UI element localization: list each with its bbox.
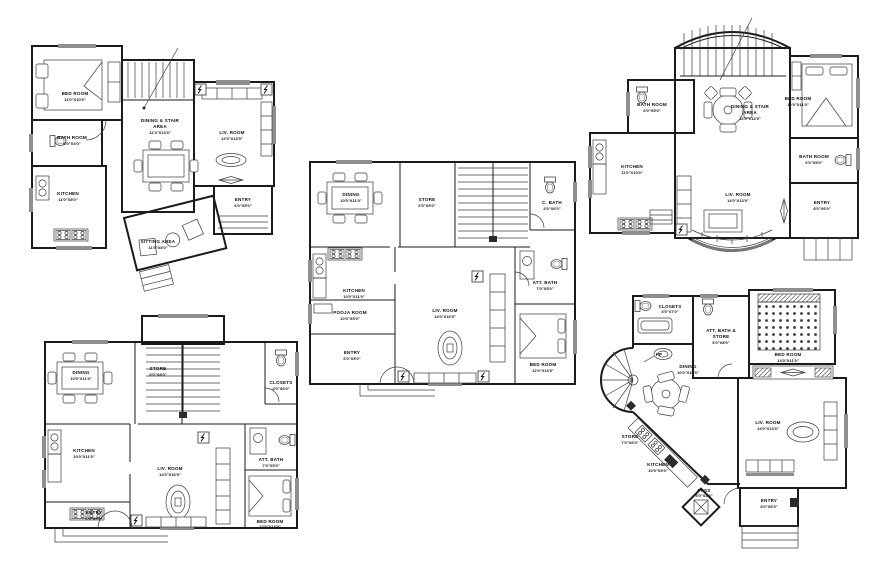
room-label: KITCHEN (621, 164, 643, 169)
room-label: STORE (419, 197, 436, 202)
door-arc (718, 364, 732, 378)
pass-box (694, 500, 708, 514)
room-label: LIV. ROOM (157, 466, 182, 471)
room-label: DINING (679, 364, 697, 369)
room-dims: 10'0"X5'0" (340, 316, 360, 321)
room-dims: 6'0"X5'0" (85, 516, 102, 521)
door-arc (530, 214, 544, 228)
wing-ornament (781, 199, 788, 223)
room-dims: 4'0"X4'0" (695, 493, 712, 498)
electric-symbol (261, 84, 272, 95)
room-dims: 6'0"X5'0" (234, 203, 251, 208)
room-dims: 14'0"X13'0" (757, 426, 779, 431)
room-label: KITCHEN (73, 448, 95, 453)
stove (328, 248, 362, 260)
room-label: BATH ROOM (799, 154, 829, 159)
center-table (166, 485, 190, 519)
stove (54, 229, 88, 241)
room-dims: 14'0"X16'0" (434, 314, 456, 319)
room-label: KITCHEN (57, 191, 79, 196)
toilet-icon (635, 301, 651, 312)
room-dims: 7'0"X5'0" (536, 286, 553, 291)
room-label: POOJA ROOM (333, 310, 366, 315)
room-dims: 8'0"X6'0" (760, 504, 777, 509)
center-table (216, 154, 246, 167)
room-label: BED ROOM (530, 362, 557, 367)
room-label: ATT. BATH (259, 457, 284, 462)
dining-table (134, 141, 198, 191)
double-bed (249, 476, 291, 516)
electric-symbol (478, 371, 489, 382)
toilet-icon (703, 299, 714, 315)
kitchen-sink (313, 254, 326, 278)
room-dims: 10'0"X10'0" (677, 370, 699, 375)
room-label: KITCHEN (343, 288, 365, 293)
room-label: BED ROOM (62, 91, 89, 96)
plan-1: BED ROOM 11'0"X10'0" BATH ROOM 6'0"X4'0"… (29, 44, 276, 292)
room-dims: 14'0"X16'0" (159, 472, 181, 477)
entry-steps (218, 216, 268, 228)
room-dims: 10'0"X11'0" (340, 198, 362, 203)
floor-plan-sheet: BED ROOM 11'0"X10'0" BATH ROOM 6'0"X4'0"… (0, 0, 870, 566)
room-dims: 12'0"X11'0" (787, 102, 809, 107)
toilet-icon (551, 259, 567, 270)
room-dims: 10'0"X11'0" (73, 454, 95, 459)
round-dining-table (643, 371, 690, 416)
room-label: KITCHEN (647, 462, 669, 467)
vanity (520, 251, 534, 279)
room-dims: 12'4"X13'0" (149, 130, 171, 135)
sofa-set (414, 373, 476, 383)
sofa-set (202, 88, 272, 156)
room-label: AREA (743, 110, 757, 115)
room-dims: 10'0"X11'0" (70, 376, 92, 381)
curved-sofa (692, 230, 772, 251)
room-dims: 4'0"X6'0" (272, 386, 289, 391)
room-label: BATH ROOM (637, 102, 667, 107)
room-label: BED ROOM (785, 96, 812, 101)
room-dims: 10'0"X11'0" (343, 294, 365, 299)
room-label: DINING (72, 370, 90, 375)
entry-steps (742, 526, 798, 548)
electric-symbol (472, 271, 483, 282)
room-dims: 10'0"X9'0" (648, 468, 668, 473)
plan-5: CLOSETS 4'0"X7'0" ATT. BATH & STORE 6'0"… (601, 288, 848, 548)
room-dims: 11'0"X8'0" (148, 245, 167, 250)
kitchen-counter (628, 418, 697, 487)
room-dims: 12'0"X13'0" (532, 368, 554, 373)
sofa-set (146, 517, 206, 527)
room-label: BED ROOM (775, 352, 802, 357)
cad-drawing: BED ROOM 11'0"X10'0" BATH ROOM 6'0"X4'0"… (0, 0, 870, 566)
spiral-staircase (601, 349, 638, 411)
double-bed (802, 64, 852, 126)
electric-symbol (398, 371, 409, 382)
double-bed (520, 314, 566, 358)
room-label: ENTRY (814, 200, 830, 205)
staircase (122, 48, 194, 110)
room-label: STORE (150, 366, 167, 371)
vanity (250, 428, 266, 454)
center-table (438, 331, 462, 365)
door-arc (724, 488, 740, 504)
plan-3: BATH ROOM 6'0"X5'0" DINING & STAIR AREA … (588, 18, 860, 260)
room-dims: 11'0"X10'0" (64, 97, 86, 102)
room-label: DINING & STAIR (141, 118, 180, 123)
room-dims: 14'0"X13'0" (727, 198, 749, 203)
kitchen-sink (593, 140, 606, 164)
staircase (146, 344, 220, 418)
room-label: CLOSETS (269, 380, 292, 385)
room-label: LIV. ROOM (725, 192, 750, 197)
room-dims: 6'0"X5'0" (805, 160, 822, 165)
room-label: STORE (622, 434, 639, 439)
room-label: DINING & STAIR (731, 104, 770, 109)
steps (650, 210, 672, 224)
stove (618, 218, 652, 230)
electric-symbol (676, 224, 687, 235)
toilet-icon (835, 155, 851, 166)
double-bed (36, 60, 102, 110)
double-bed (758, 294, 820, 350)
room-label: ATT. BATH (533, 280, 558, 285)
electric-symbol (195, 84, 206, 95)
plan-4: DINING 10'0"X11'0" STORE 6'0"X8'0" CLOSE… (42, 314, 299, 542)
room-label: DINING (342, 192, 360, 197)
room-label: SITTING AREA (141, 239, 176, 244)
electric-symbol (198, 432, 209, 443)
room-dims: 11'0"X10'0" (621, 170, 643, 175)
pooja-shelf (314, 304, 332, 313)
wardrobe (490, 274, 505, 362)
room-dims: 12'0"X13'0" (221, 136, 243, 141)
room-dims: 14'0"X11'0" (777, 358, 799, 363)
staircase (458, 162, 528, 242)
dresser-row (753, 366, 833, 379)
room-dims: 12'0"X13'0" (259, 524, 281, 529)
wing-ornament (219, 177, 243, 184)
room-dims: 6'0"X5'0" (343, 356, 360, 361)
wardrobe (216, 448, 230, 524)
room-dims: 4'0"X7'0" (661, 309, 678, 314)
room-label: BATH ROOM (57, 135, 87, 140)
room-label: ENTRY (235, 197, 251, 202)
room-dims: 7'0"X5'0" (262, 463, 279, 468)
electric-symbol (131, 515, 142, 526)
toilet-icon (279, 435, 295, 446)
room-dims: 6'0"X5'0" (643, 108, 660, 113)
kitchen-sink (48, 430, 61, 454)
center-table (787, 422, 819, 442)
kitchen-sink (36, 176, 49, 200)
room-label: LIV. ROOM (755, 420, 780, 425)
tv-table (704, 210, 742, 232)
room-dims: 4'0"X6'0" (543, 206, 560, 211)
room-dims: 8'0"X6'0" (813, 206, 830, 211)
room-dims: 6'0"X8'0" (712, 340, 729, 345)
room-label: ENTRY (344, 350, 360, 355)
room-label: AREA (153, 124, 167, 129)
room-label: LIV. ROOM (432, 308, 457, 313)
bathtub (638, 318, 672, 333)
room-dims: 6'0"X8'0" (149, 372, 166, 377)
room-label: ENTRY (761, 498, 777, 503)
room-dims: 6'0"X9'0" (418, 203, 435, 208)
toilet-icon (545, 177, 556, 193)
room-label: ENTRY (86, 510, 102, 515)
entry-steps (804, 238, 852, 260)
room-label: C. BATH (542, 200, 562, 205)
room-label: STORE (713, 334, 730, 339)
toilet-icon (276, 350, 287, 366)
room-label: ATT. BATH & (706, 328, 736, 333)
room-dims: 7'0"X6'0" (621, 440, 638, 445)
room-dims: 11'0"X8'0" (58, 197, 77, 202)
room-dims: 12'0"X13'0" (739, 116, 761, 121)
plan-2: DINING 10'0"X11'0" STORE 6'0"X9'0" C. BA… (308, 160, 577, 396)
room-dims: 6'0"X4'0" (63, 141, 80, 146)
toilet-icon (637, 87, 648, 103)
room-label: LIV. ROOM (219, 130, 244, 135)
marker-label: PP (656, 352, 663, 357)
